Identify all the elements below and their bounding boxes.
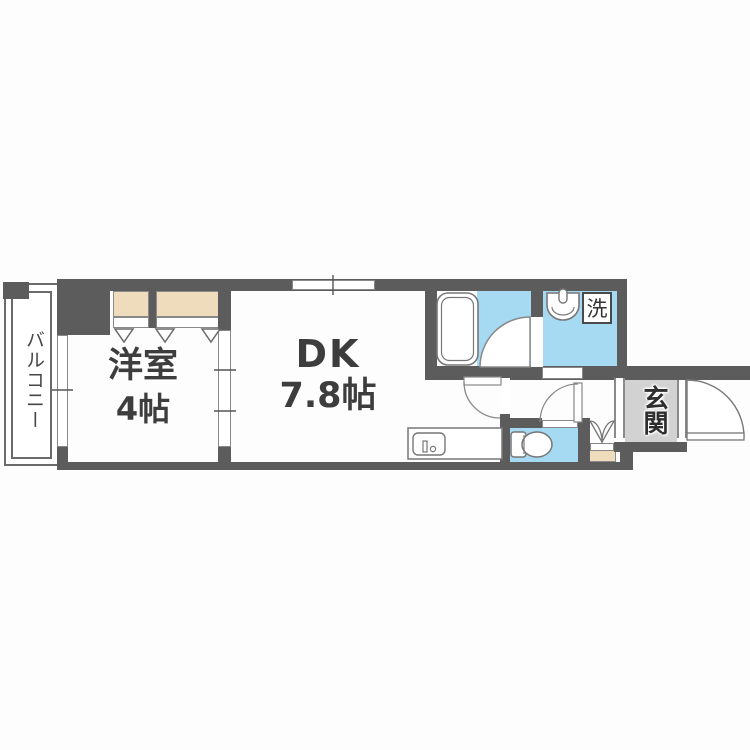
washbasin-icon (547, 289, 579, 320)
dk-door-swing (464, 377, 501, 418)
toilet-icon (511, 432, 552, 457)
dk-size: 7.8帖 (253, 376, 403, 416)
western-room-size: 4帖 (78, 391, 208, 428)
entrance-door-swing (687, 380, 744, 440)
kitchen-sink-icon (408, 428, 502, 459)
bathtub-icon (437, 293, 478, 365)
laundry-pan: 洗 (582, 292, 612, 324)
dk-name: DK (263, 333, 393, 377)
western-room-name: 洋室 (78, 346, 208, 386)
laundry-label: 洗 (587, 293, 608, 323)
bifold-door-icon (590, 421, 614, 442)
folding-door-triangles (115, 329, 220, 342)
floor-plan: バルコニー (0, 0, 750, 750)
entrance-label: 玄関 (634, 376, 668, 444)
bathroom-door-swing (480, 317, 530, 367)
toilet-door-swing (540, 383, 582, 422)
